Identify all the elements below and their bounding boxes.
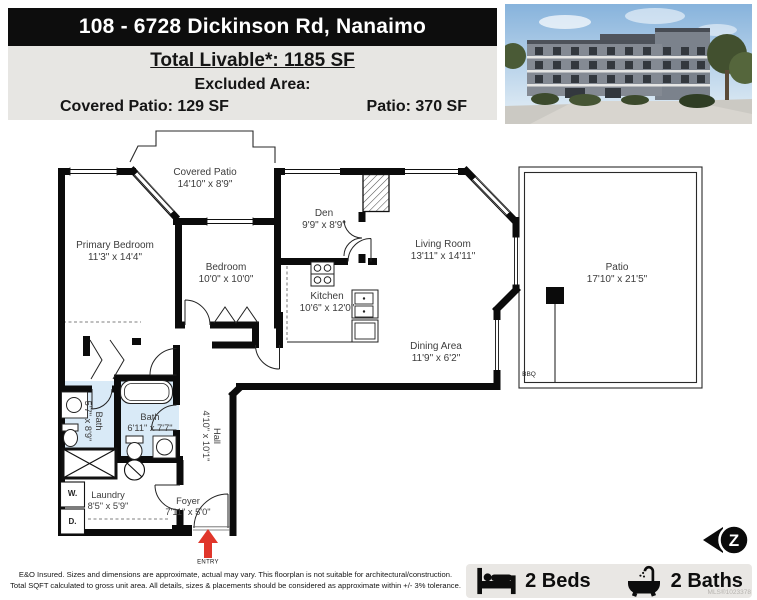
entry-jamb <box>172 525 192 536</box>
entry-arrow <box>198 529 218 558</box>
room-label-bedroom: Bedroom 10'0" x 10'0" <box>199 262 254 286</box>
room-label-dining-area: Dining Area 11'9" x 6'2" <box>410 341 462 365</box>
fireplace <box>363 175 389 212</box>
room-label-laundry: Laundry 8'5" x 5'9" <box>88 490 129 512</box>
room-label-den: Den 9'9" x 8'9" <box>302 208 346 232</box>
mls-number: MLS®1023378 <box>708 589 751 596</box>
room-label-covered-patio: Covered Patio 14'10" x 8'9" <box>173 167 236 191</box>
bed-icon <box>475 567 517 595</box>
disclaimer-line2: Total SQFT calculated to gross unit area… <box>8 580 463 591</box>
beds-count: 2 Beds <box>525 570 591 593</box>
floorplan-sheet: 108 - 6728 Dickinson Rd, Nanaimo Total L… <box>0 0 757 600</box>
disclaimer-line1: E&O Insured. Sizes and dimensions are ap… <box>8 569 463 580</box>
room-label-bath-ensuite: Bath 5'7" x 8'9" <box>82 401 104 442</box>
entry-label: ENTRY <box>197 559 219 566</box>
patio-post <box>546 287 564 304</box>
room-label-bath-main: Bath 6'11" x 7'7" <box>127 412 172 434</box>
logo-letter: Z <box>729 531 739 550</box>
room-label-foyer: Foyer 7'11" x 5'0" <box>165 496 210 518</box>
bath-icon <box>625 565 663 597</box>
bbq-label: BBQ <box>522 371 536 379</box>
floorplan-company-logo: Z <box>701 522 751 558</box>
room-label-hall: Hall 4'10" x 10'1" <box>200 411 222 462</box>
room-label-kitchen: Kitchen 10'6" x 12'0" <box>300 291 355 315</box>
disclaimer: E&O Insured. Sizes and dimensions are ap… <box>8 569 463 592</box>
room-label-patio: Patio 17'10" x 21'5" <box>587 262 647 286</box>
entry-threshold <box>193 527 230 530</box>
dryer-label: D. <box>69 517 77 527</box>
washer-label: W. <box>68 489 77 499</box>
room-label-living-room: Living Room 13'11" x 14'11" <box>411 239 475 263</box>
room-label-primary-bedroom: Primary Bedroom 11'3" x 14'4" <box>76 240 154 264</box>
